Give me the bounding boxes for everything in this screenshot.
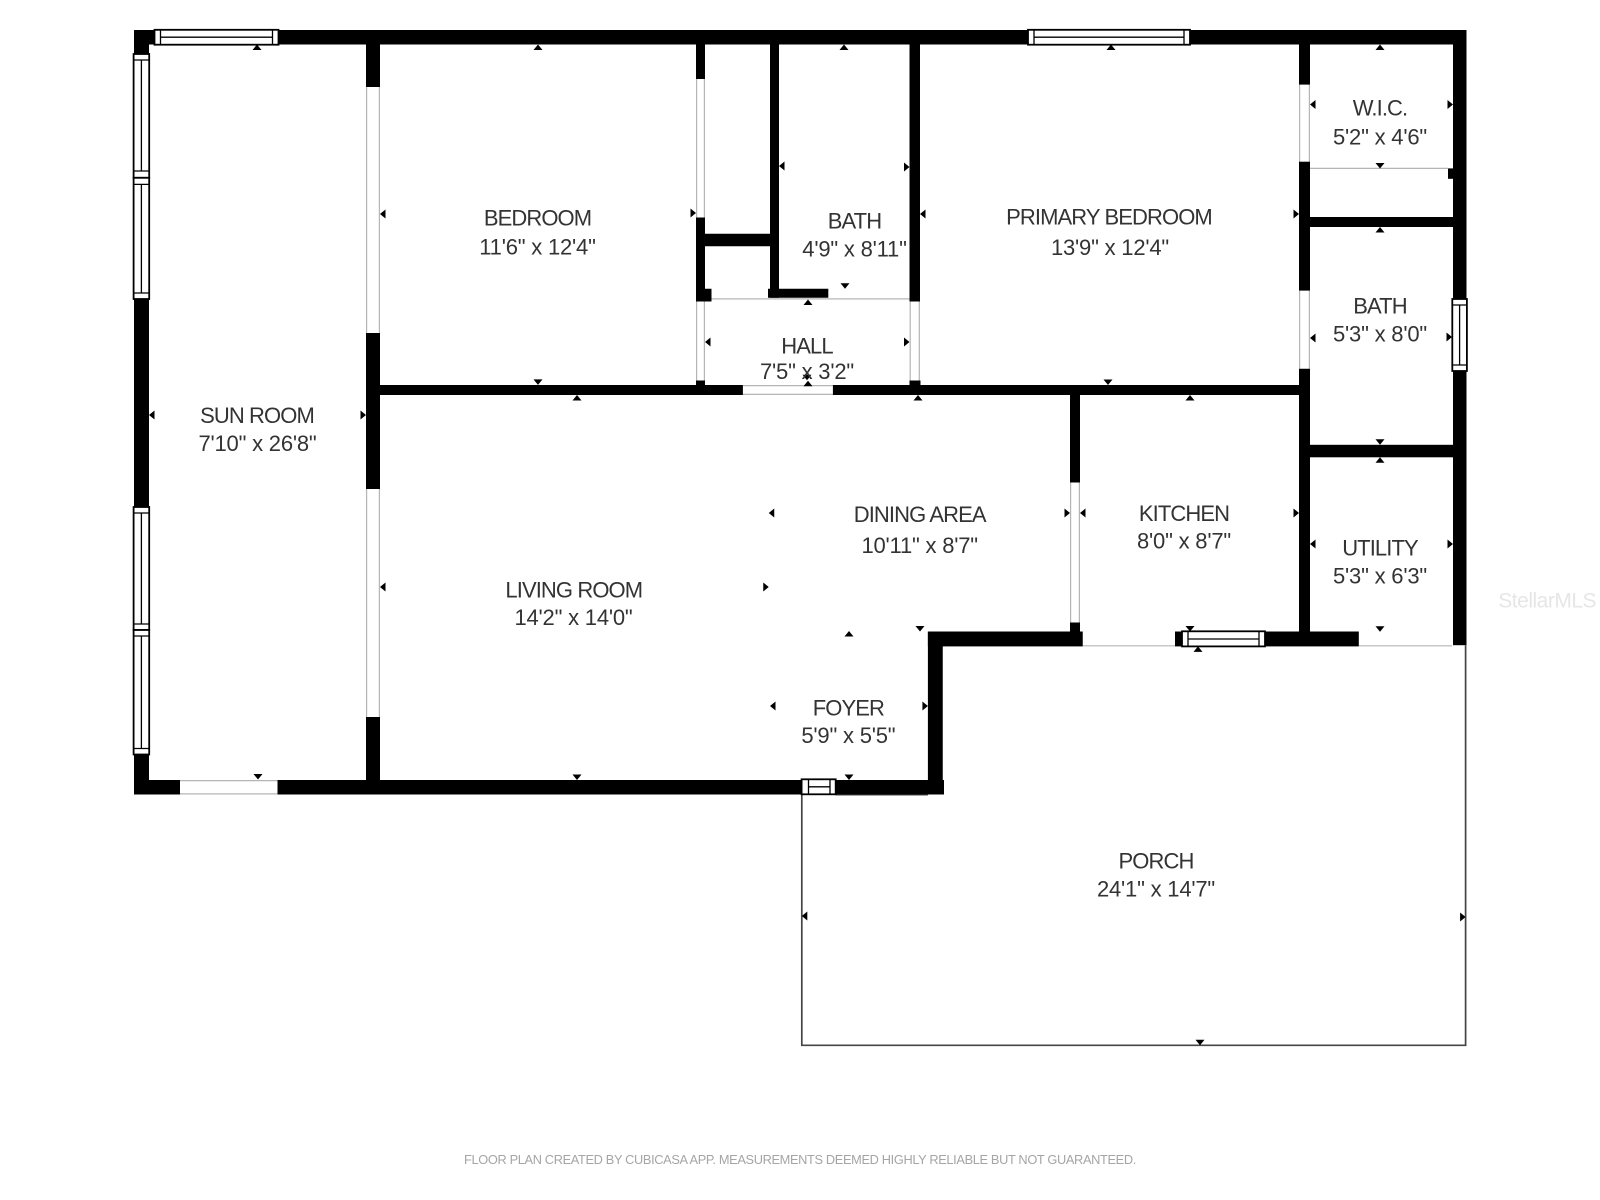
svg-text:BEDROOM: BEDROOM [484,206,591,231]
svg-text:5'3" x 6'3": 5'3" x 6'3" [1333,564,1427,589]
svg-text:BATH: BATH [1353,294,1406,319]
svg-text:5'9" x 5'5": 5'9" x 5'5" [801,723,895,748]
svg-text:SUN ROOM: SUN ROOM [200,403,314,428]
svg-text:W.I.C.: W.I.C. [1353,96,1408,121]
svg-text:FOYER: FOYER [813,696,884,721]
svg-text:13'9" x 12'4": 13'9" x 12'4" [1051,235,1169,260]
svg-text:BATH: BATH [828,209,881,234]
svg-text:14'2" x 14'0": 14'2" x 14'0" [514,605,632,630]
svg-text:7'5" x 3'2": 7'5" x 3'2" [760,359,854,384]
svg-text:FLOOR PLAN CREATED BY CUBICASA: FLOOR PLAN CREATED BY CUBICASA APP. MEAS… [464,1152,1136,1167]
svg-text:5'3" x 8'0": 5'3" x 8'0" [1333,322,1427,347]
svg-text:10'11" x 8'7": 10'11" x 8'7" [861,533,977,558]
svg-text:PRIMARY BEDROOM: PRIMARY BEDROOM [1006,205,1212,230]
svg-text:StellarMLS: StellarMLS [1498,590,1596,613]
svg-text:LIVING ROOM: LIVING ROOM [505,578,642,603]
svg-text:7'10" x 26'8": 7'10" x 26'8" [198,431,316,456]
svg-text:24'1" x 14'7": 24'1" x 14'7" [1097,877,1215,902]
svg-text:DINING AREA: DINING AREA [854,502,987,527]
svg-text:8'0" x 8'7": 8'0" x 8'7" [1137,529,1231,554]
svg-text:UTILITY: UTILITY [1342,536,1419,561]
svg-text:HALL: HALL [781,334,833,359]
svg-text:11'6" x 12'4": 11'6" x 12'4" [479,235,595,260]
svg-text:PORCH: PORCH [1119,849,1194,874]
svg-text:KITCHEN: KITCHEN [1139,501,1229,526]
svg-text:4'9" x 8'11": 4'9" x 8'11" [802,237,906,262]
svg-text:5'2" x 4'6": 5'2" x 4'6" [1333,125,1427,150]
